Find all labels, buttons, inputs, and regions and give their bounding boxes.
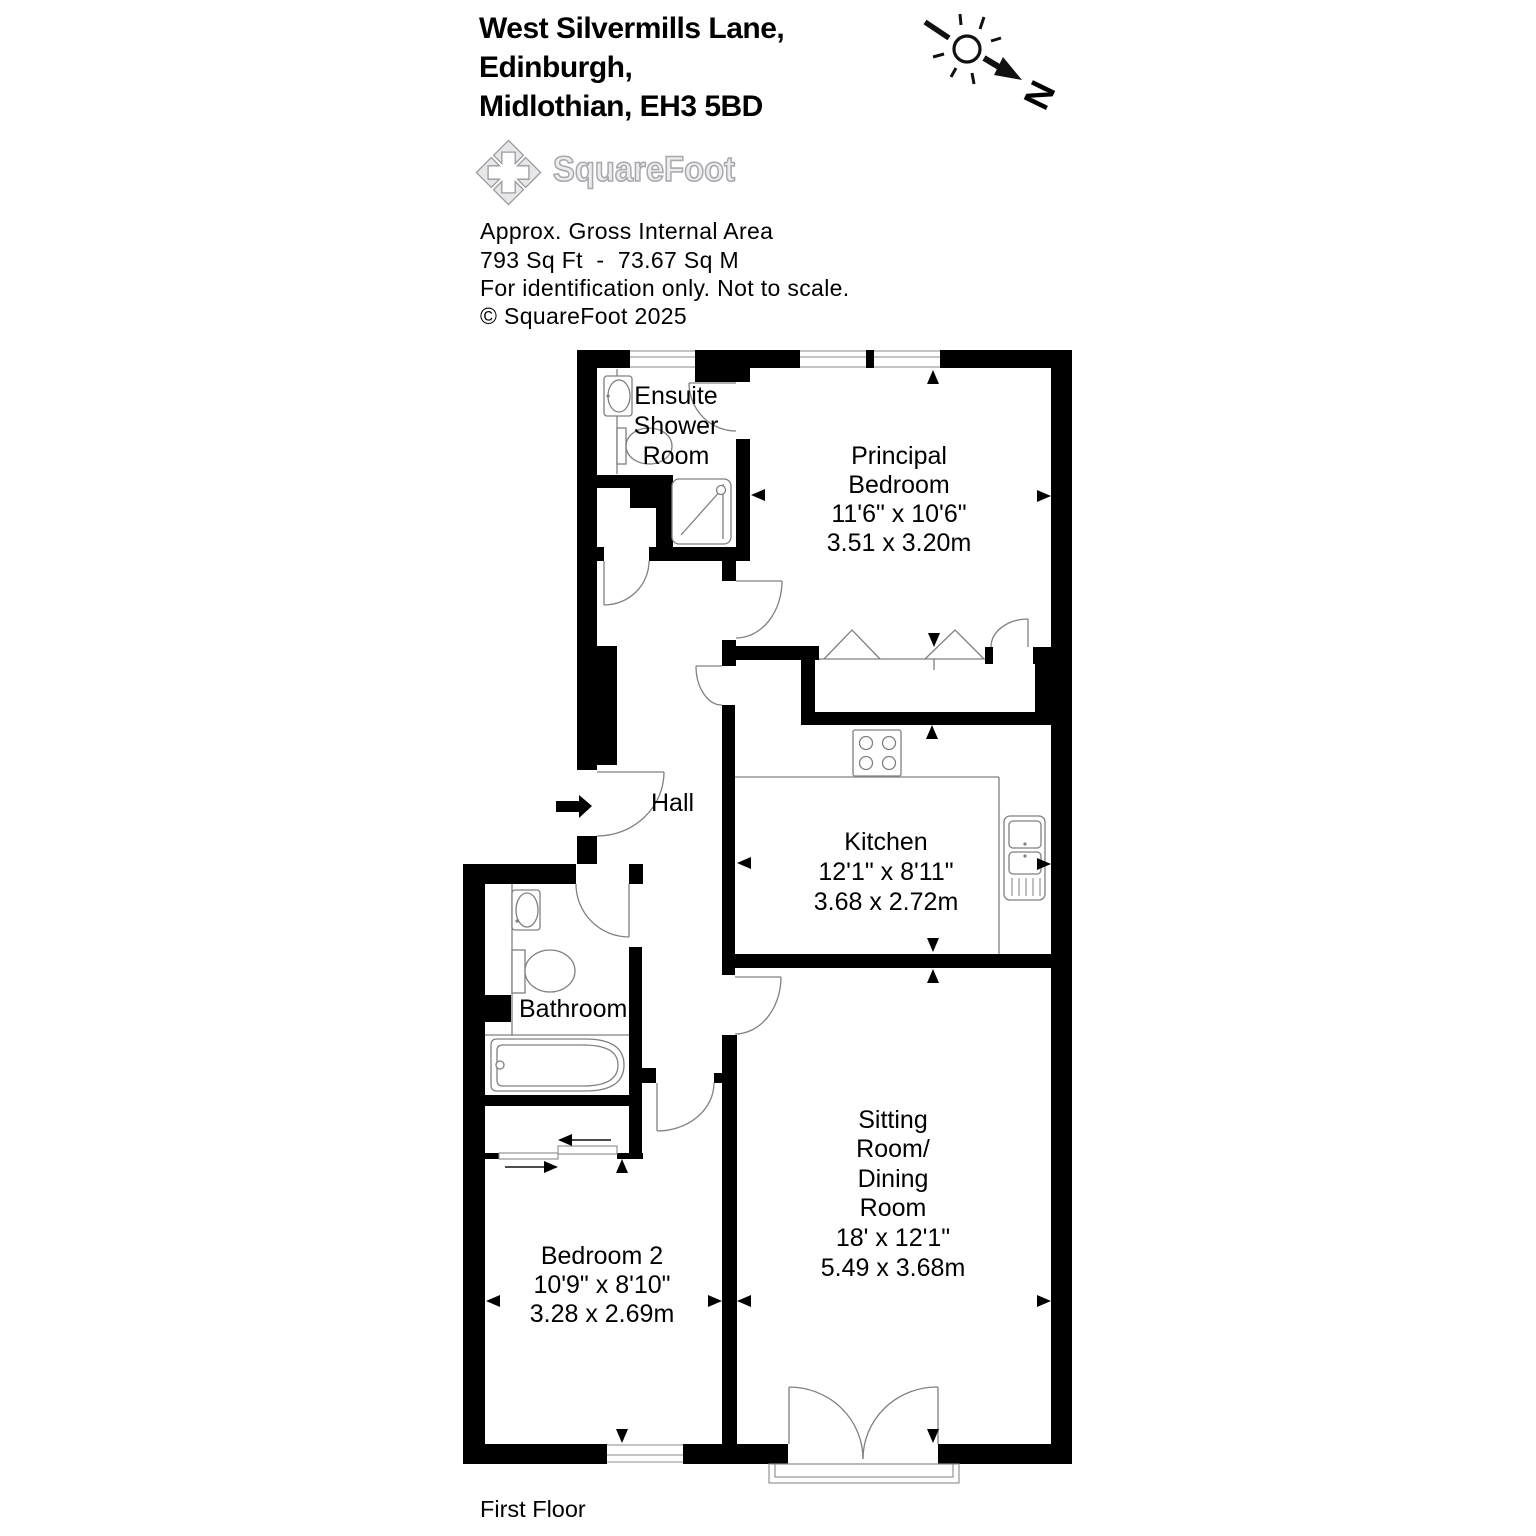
svg-text:3.68 x 2.72m: 3.68 x 2.72m bbox=[814, 888, 959, 916]
svg-text:For identification only. Not t: For identification only. Not to scale. bbox=[480, 275, 850, 301]
svg-text:© SquareFoot 2025: © SquareFoot 2025 bbox=[480, 303, 687, 329]
svg-text:Room/: Room/ bbox=[856, 1135, 930, 1163]
svg-text:18' x 12'1": 18' x 12'1" bbox=[836, 1224, 950, 1252]
svg-text:Bathroom: Bathroom bbox=[519, 995, 627, 1023]
svg-text:3.51 x 3.20m: 3.51 x 3.20m bbox=[827, 529, 972, 557]
svg-text:Room: Room bbox=[860, 1194, 927, 1222]
svg-text:SquareFoot: SquareFoot bbox=[553, 150, 735, 189]
svg-text:Room: Room bbox=[643, 442, 710, 470]
svg-text:3.28 x 2.69m: 3.28 x 2.69m bbox=[530, 1300, 675, 1328]
svg-text:Bedroom: Bedroom bbox=[848, 471, 949, 499]
svg-text:Dining: Dining bbox=[858, 1165, 929, 1193]
svg-text:Shower: Shower bbox=[634, 412, 719, 440]
svg-text:10'9" x 8'10": 10'9" x 8'10" bbox=[533, 1271, 670, 1299]
svg-text:Kitchen: Kitchen bbox=[844, 828, 927, 856]
svg-text:Midlothian, EH3 5BD: Midlothian, EH3 5BD bbox=[479, 90, 763, 123]
svg-text:West Silvermills Lane,: West Silvermills Lane, bbox=[479, 12, 784, 45]
svg-text:Ensuite: Ensuite bbox=[634, 382, 717, 410]
svg-text:5.49 x 3.68m: 5.49 x 3.68m bbox=[821, 1254, 966, 1282]
svg-text:Principal: Principal bbox=[851, 442, 947, 470]
svg-text:Sitting: Sitting bbox=[858, 1106, 927, 1134]
svg-text:793 Sq Ft - 73.67 Sq M: 793 Sq Ft - 73.67 Sq M bbox=[480, 247, 739, 273]
svg-text:First Floor: First Floor bbox=[480, 1496, 586, 1522]
svg-text:Edinburgh,: Edinburgh, bbox=[479, 51, 632, 84]
svg-text:Approx. Gross Internal Area: Approx. Gross Internal Area bbox=[480, 218, 773, 244]
svg-text:11'6" x 10'6": 11'6" x 10'6" bbox=[831, 500, 966, 528]
svg-text:12'1" x 8'11": 12'1" x 8'11" bbox=[818, 858, 953, 886]
svg-text:Bedroom 2: Bedroom 2 bbox=[541, 1242, 663, 1270]
svg-text:Hall: Hall bbox=[651, 789, 694, 817]
